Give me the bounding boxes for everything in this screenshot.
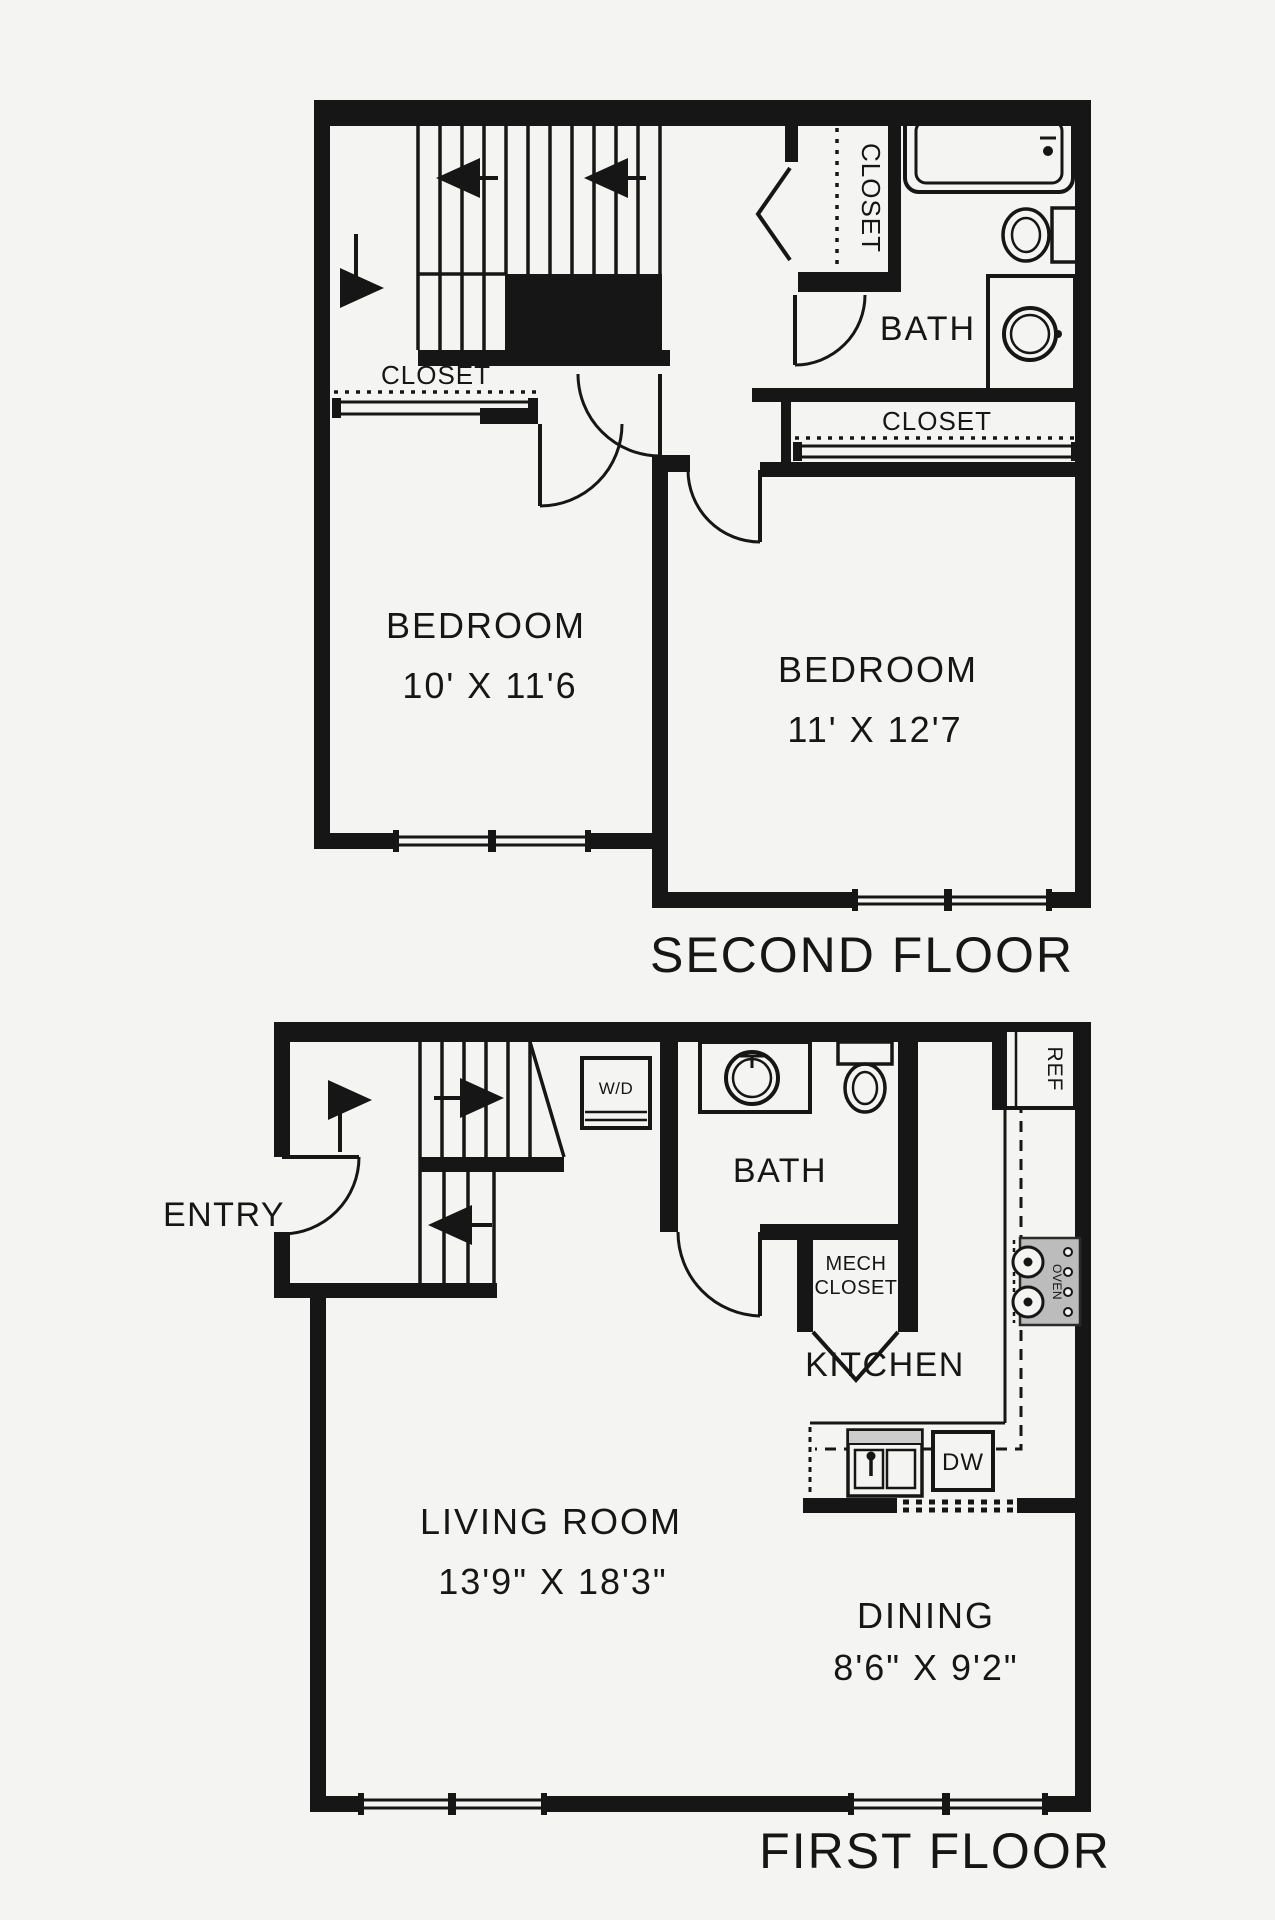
bedroom2-dims: 11' X 12'7 (787, 709, 962, 750)
stove-icon: OVEN (1013, 1238, 1080, 1325)
bedroom1-label: BEDROOM (386, 605, 586, 646)
dishwasher-label: DW (942, 1449, 984, 1476)
window-symbol (848, 1793, 1048, 1815)
mech-closet-label-line1: MECH (826, 1253, 887, 1275)
sink-vanity-icon (700, 1042, 810, 1112)
mech-closet-label-line2: CLOSET (814, 1277, 897, 1299)
washer-dryer-label: W/D (599, 1079, 634, 1098)
closet-hall-label: CLOSET (856, 143, 886, 253)
living-room-dims: 13'9" X 18'3" (438, 1561, 667, 1602)
stair-break-line (530, 1042, 564, 1157)
window-symbol (393, 830, 591, 852)
bedroom1-dims: 10' X 11'6 (402, 665, 577, 706)
dining-dims: 8'6" X 9'2" (833, 1647, 1018, 1688)
door-swing-bath-2f (795, 295, 865, 365)
floor-plan-page: BEDROOM 10' X 11'6 BEDROOM 11' X 12'7 BA… (0, 0, 1275, 1920)
bath-2f-label: BATH (880, 310, 976, 348)
floor-plan-canvas: BEDROOM 10' X 11'6 BEDROOM 11' X 12'7 BA… (0, 0, 1275, 1920)
first-floor-bath-fixtures (700, 1042, 892, 1112)
first-floor-title: FIRST FLOOR (759, 1823, 1111, 1879)
second-floor-bath-fixtures (905, 112, 1081, 390)
door-swing-bath-1f (678, 1232, 760, 1316)
kitchen-sink-icon (848, 1430, 922, 1496)
second-floor-walls (314, 100, 1091, 908)
first-floor-plan: W/D REF (163, 1022, 1111, 1879)
window-symbol (358, 1793, 547, 1815)
sink-vanity-icon (988, 276, 1075, 390)
first-floor-walls (274, 1022, 1091, 1812)
toilet-icon (838, 1042, 892, 1112)
second-floor-title: SECOND FLOOR (650, 927, 1074, 983)
bedroom2-label: BEDROOM (778, 649, 978, 690)
closet-bedroom2-label: CLOSET (882, 406, 992, 436)
up-arrow-icon (340, 1100, 364, 1152)
down-arrow-icon (356, 234, 376, 288)
door-swing-entry (282, 1157, 359, 1234)
refrigerator-label: REF (1043, 1047, 1066, 1092)
stair-void (505, 274, 662, 352)
toilet-icon (1003, 208, 1081, 262)
kitchen-passthrough-dotted-wall (903, 1502, 1013, 1510)
refrigerator-icon: REF (1005, 1030, 1075, 1108)
washer-dryer-icon: W/D (582, 1058, 650, 1128)
bath-1f-label: BATH (733, 1152, 827, 1190)
entry-label: ENTRY (163, 1196, 285, 1234)
second-floor-plan: BEDROOM 10' X 11'6 BEDROOM 11' X 12'7 BA… (314, 100, 1091, 983)
door-swing-bedroom2 (688, 470, 760, 542)
closet-bedroom1-label: CLOSET (381, 360, 491, 390)
bedroom1-closet-shelf (332, 392, 538, 418)
bifold-door-icon (758, 168, 790, 260)
door-swing-bedroom1 (540, 424, 622, 506)
kitchen-label: KITCHEN (805, 1346, 965, 1384)
dishwasher-icon: DW (933, 1432, 993, 1490)
window-symbol (852, 889, 1052, 911)
oven-label: OVEN (1050, 1264, 1064, 1300)
bedroom2-closet-shelf (793, 438, 1080, 461)
stair-direction-arrows-2f (356, 178, 646, 288)
dining-label: DINING (857, 1595, 995, 1636)
living-room-label: LIVING ROOM (420, 1501, 682, 1542)
